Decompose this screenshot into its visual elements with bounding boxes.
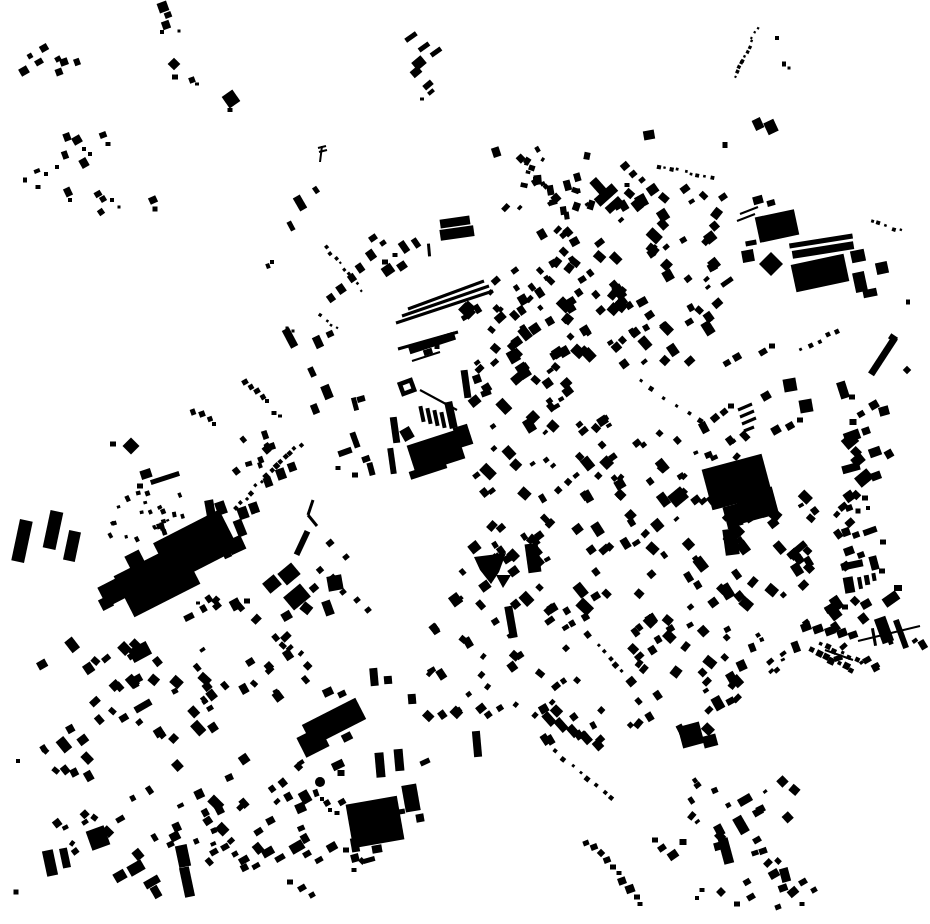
figure-ground-map <box>0 0 930 924</box>
map-canvas <box>0 0 930 924</box>
